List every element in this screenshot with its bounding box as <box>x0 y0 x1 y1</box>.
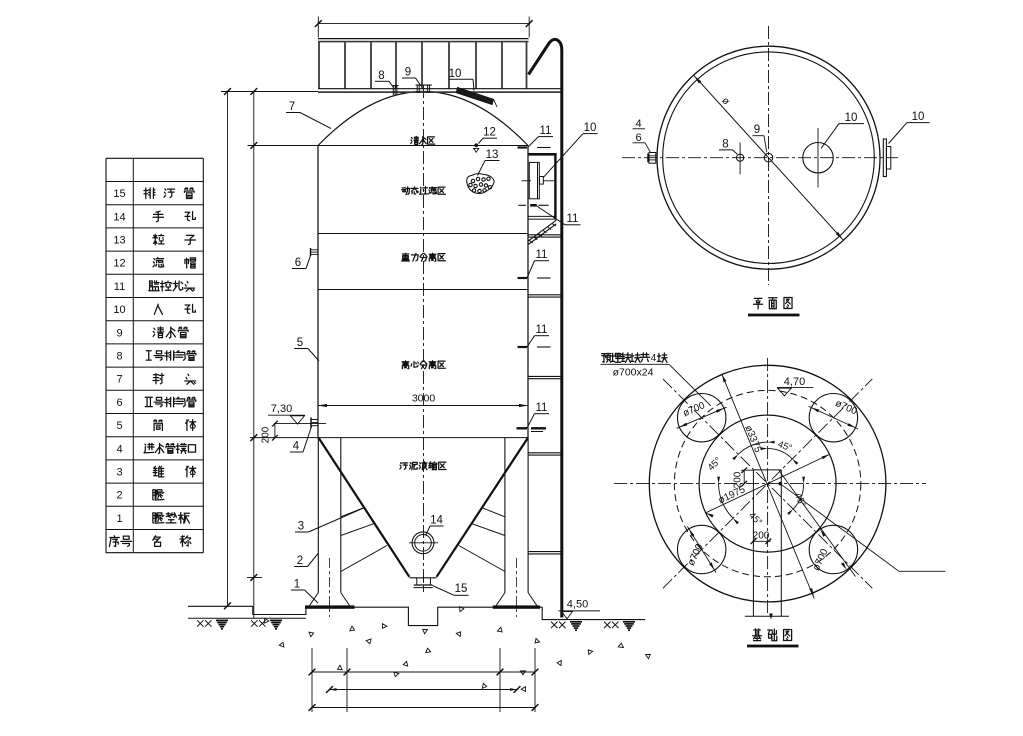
svg-text:6: 6 <box>635 132 641 144</box>
svg-text:10: 10 <box>113 304 125 316</box>
svg-text:3000: 3000 <box>412 393 436 405</box>
svg-text:4,70: 4,70 <box>784 376 805 388</box>
svg-text:14: 14 <box>430 515 443 527</box>
svg-text:11: 11 <box>536 324 548 336</box>
svg-text:9: 9 <box>405 67 411 79</box>
svg-text:5: 5 <box>297 337 303 349</box>
svg-text:200: 200 <box>753 531 770 542</box>
svg-text:4: 4 <box>293 441 300 453</box>
svg-text:1: 1 <box>294 579 300 591</box>
svg-text:7: 7 <box>289 101 295 113</box>
svg-text:10: 10 <box>449 68 462 80</box>
svg-text:10: 10 <box>912 111 925 123</box>
svg-text:11: 11 <box>114 281 125 293</box>
svg-text:8: 8 <box>722 139 728 151</box>
svg-text:13: 13 <box>486 149 499 161</box>
svg-text:11: 11 <box>540 125 552 137</box>
svg-text:4: 4 <box>651 353 657 364</box>
svg-text:8: 8 <box>378 70 384 82</box>
svg-text:9: 9 <box>116 327 122 339</box>
svg-text:11: 11 <box>536 402 548 414</box>
svg-text:12: 12 <box>113 258 125 270</box>
svg-text:15: 15 <box>455 583 468 595</box>
svg-text:8: 8 <box>116 351 122 363</box>
svg-text:200: 200 <box>733 471 744 488</box>
svg-text:4,50: 4,50 <box>567 599 588 611</box>
svg-text:4: 4 <box>116 443 122 455</box>
svg-text:5: 5 <box>116 420 122 432</box>
svg-text:4: 4 <box>635 118 641 130</box>
svg-text:3: 3 <box>298 521 304 533</box>
svg-text:2: 2 <box>297 555 303 567</box>
svg-text:6: 6 <box>295 257 301 269</box>
svg-text:10: 10 <box>584 122 597 134</box>
svg-text:ø700x24: ø700x24 <box>613 367 654 379</box>
svg-text:3: 3 <box>116 467 122 479</box>
svg-text:9: 9 <box>754 124 760 136</box>
svg-text:7: 7 <box>116 374 122 386</box>
svg-text:10: 10 <box>845 112 858 124</box>
svg-text:12: 12 <box>483 127 496 139</box>
svg-text:13: 13 <box>113 235 125 247</box>
svg-text:200: 200 <box>261 426 272 443</box>
svg-text:14: 14 <box>113 211 125 223</box>
svg-text:6: 6 <box>116 397 122 409</box>
svg-text:1: 1 <box>116 513 122 525</box>
svg-text:11: 11 <box>567 213 579 225</box>
svg-text:15: 15 <box>113 188 125 200</box>
svg-text:2: 2 <box>116 490 122 502</box>
svg-text:7,30: 7,30 <box>271 403 292 415</box>
svg-text:11: 11 <box>536 249 548 261</box>
